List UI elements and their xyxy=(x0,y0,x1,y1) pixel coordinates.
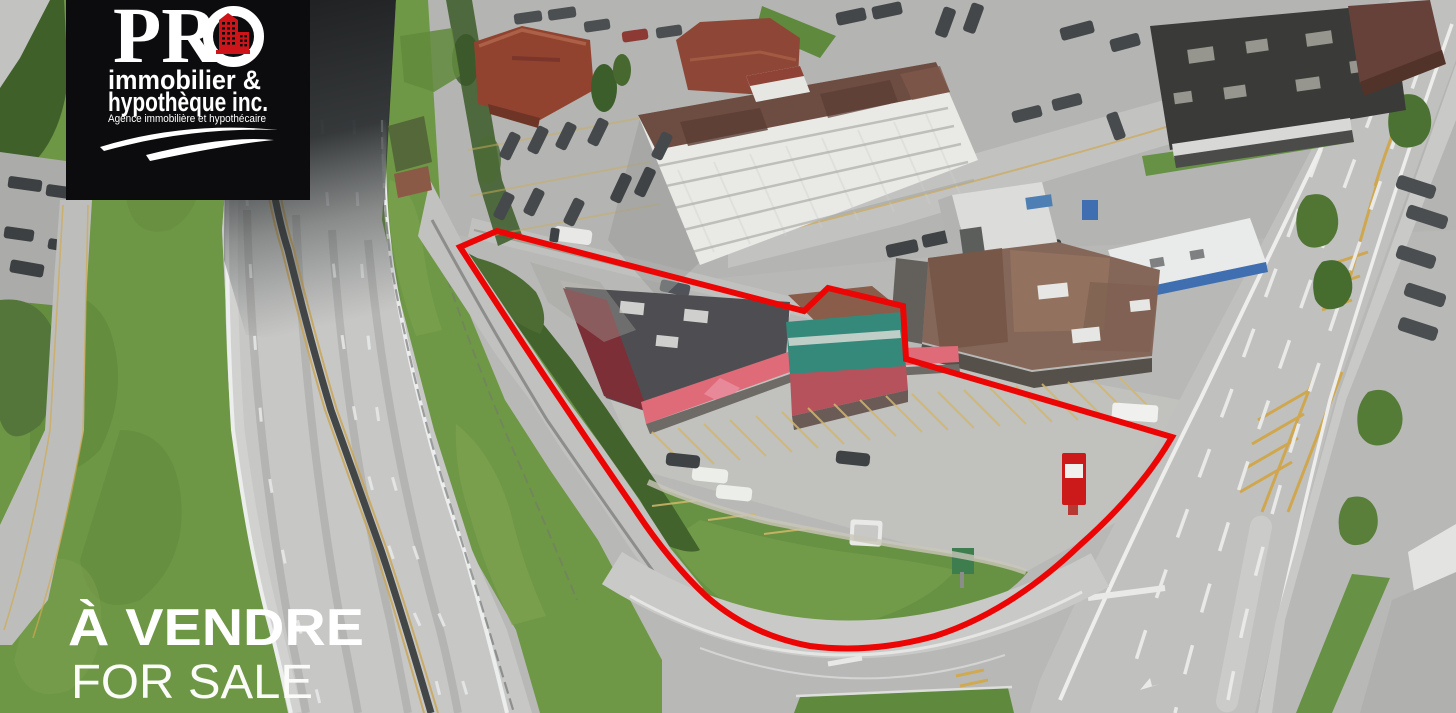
svg-text:FOR SALE: FOR SALE xyxy=(71,656,313,709)
svg-text:À VENDRE: À VENDRE xyxy=(68,599,364,657)
svg-text:Agence immobilière et hypothéc: Agence immobilière et hypothécaire xyxy=(108,113,266,125)
